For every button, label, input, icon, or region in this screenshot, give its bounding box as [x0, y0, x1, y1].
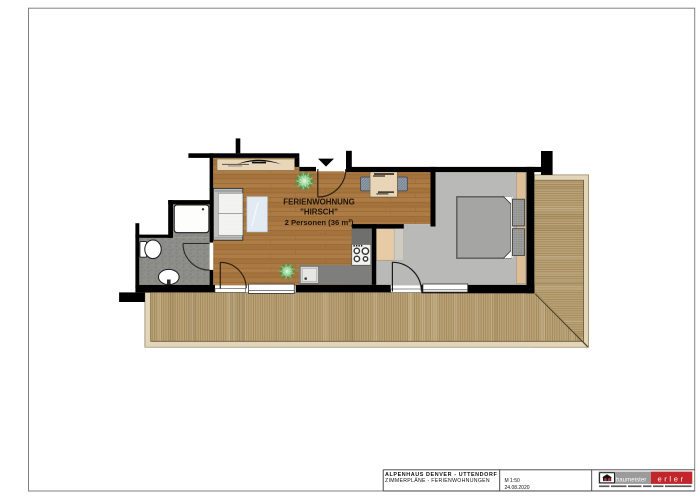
svg-text:"HIRSCH": "HIRSCH"	[300, 207, 338, 216]
svg-text:FERIENWOHNUNG: FERIENWOHNUNG	[283, 197, 354, 206]
svg-text:24.08.2020: 24.08.2020	[505, 485, 530, 491]
svg-text:erler: erler	[657, 474, 685, 483]
svg-text:M 1:50: M 1:50	[505, 478, 521, 484]
svg-text:2 Personen (36 m²): 2 Personen (36 m²)	[285, 218, 354, 227]
svg-text:baumeister: baumeister	[616, 478, 647, 484]
svg-text:ZIMMERPLÄNE - FERIENWOHNUNGEN: ZIMMERPLÄNE - FERIENWOHNUNGEN	[385, 477, 490, 484]
